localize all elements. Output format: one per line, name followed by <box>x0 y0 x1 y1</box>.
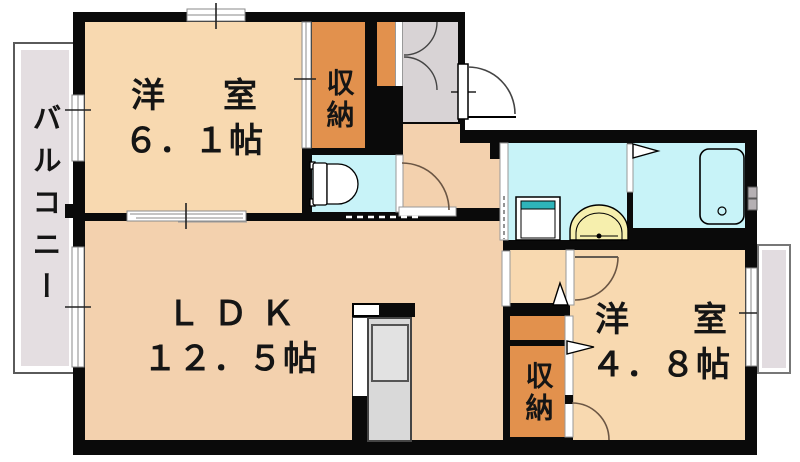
storage-bottom-top-wall <box>503 303 570 316</box>
kitchen-partition-wall <box>352 396 368 442</box>
room-western-4-8-label: 洋 室 ４．８帖 <box>572 298 750 388</box>
room-size: ６．１帖 <box>88 119 300 164</box>
room-ldk-label: ＬＤＫ １２．５帖 <box>108 292 353 382</box>
hall-floor <box>403 124 460 208</box>
bathroom-floor <box>633 143 745 228</box>
kitchen-sink-icon <box>371 324 409 382</box>
storage-bottom-upper <box>510 316 565 340</box>
closet-door-strip <box>395 22 403 86</box>
kitchen-counter-wall <box>379 303 415 317</box>
storage-top-label: 収納 <box>312 44 365 156</box>
room-size: ４．８帖 <box>572 343 750 388</box>
storage-bottom-label: 収納 <box>510 350 565 436</box>
room-name: ＬＤＫ <box>108 292 353 337</box>
room-western-6-1-label: 洋 室 ６．１帖 <box>88 74 300 164</box>
entry-floor <box>403 22 458 122</box>
room-size: １２．５帖 <box>108 337 353 382</box>
entry-door-arc-icon <box>458 64 516 119</box>
kitchen-counter-opening <box>352 303 381 317</box>
toilet-room-floor <box>312 155 397 212</box>
room-name: 洋 室 <box>572 298 750 343</box>
washroom-floor <box>508 143 627 240</box>
kitchen-partition <box>352 317 368 397</box>
wall-stub-corridor <box>490 143 507 159</box>
storage-bottom-bottom-wall <box>503 437 573 455</box>
bay-window-floor <box>762 250 786 368</box>
storage-top-strip2 <box>377 22 395 86</box>
balcony-label: バルコニー <box>21 50 69 366</box>
room-name: 洋 室 <box>88 74 300 119</box>
floor-plan: 洋 室 ６．１帖 ＬＤＫ １２．５帖 洋 室 ４．８帖 収納 収納 バルコニー <box>0 0 800 462</box>
